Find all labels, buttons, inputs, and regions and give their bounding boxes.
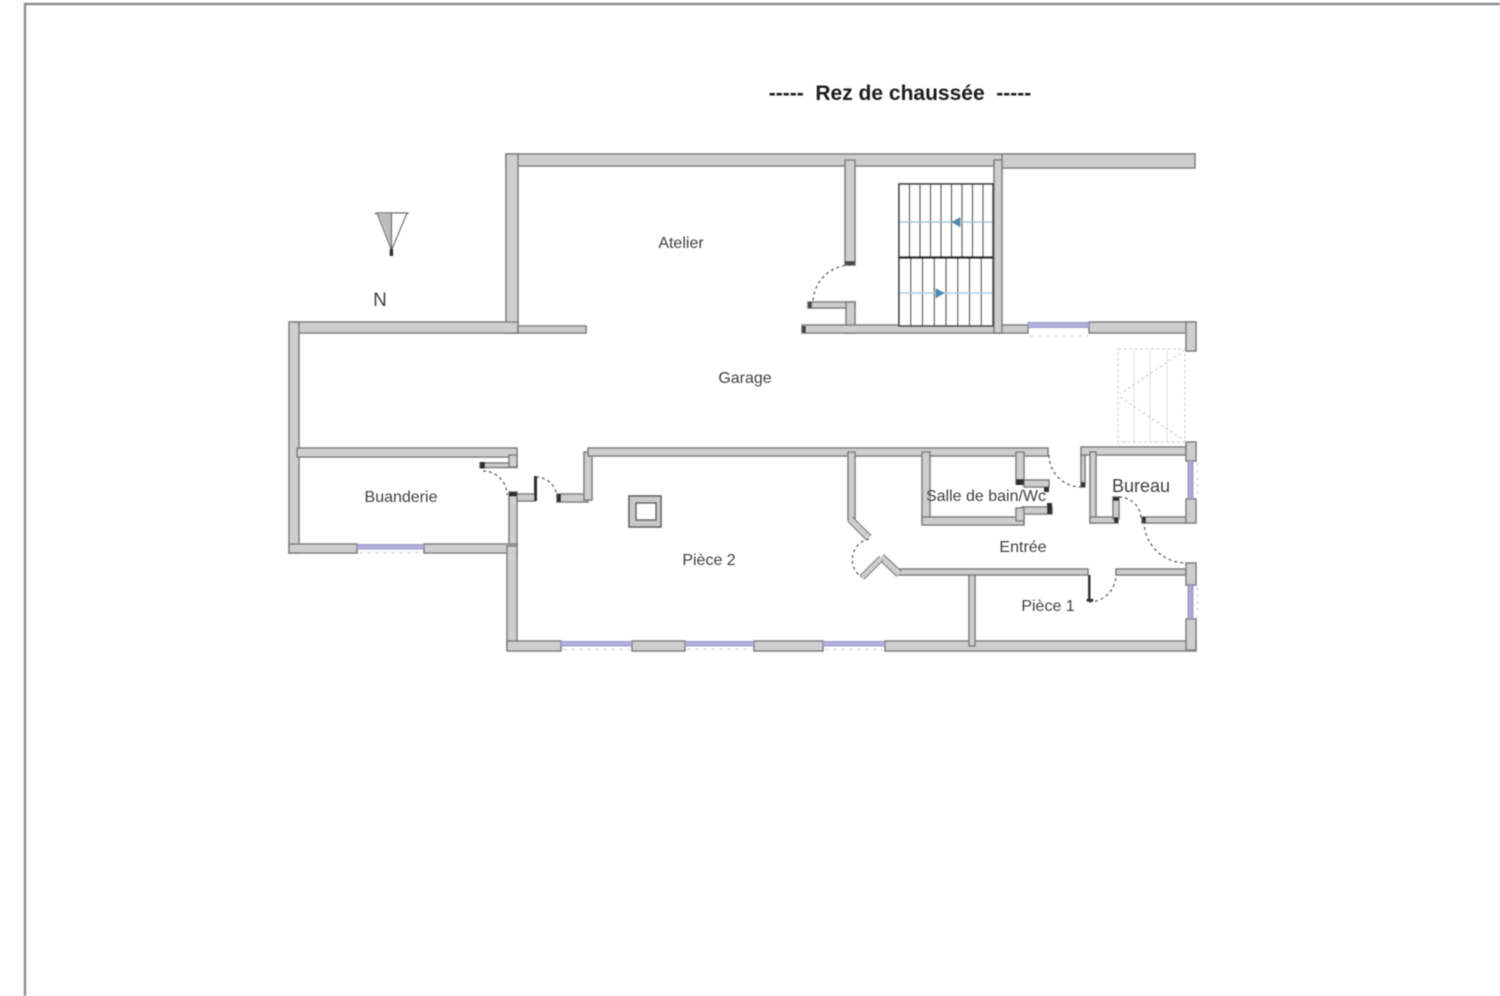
svg-text:Pièce 1: Pièce 1 bbox=[1021, 598, 1074, 615]
svg-text:Garage: Garage bbox=[718, 370, 771, 387]
svg-text:Buanderie: Buanderie bbox=[365, 489, 438, 506]
svg-text:----- Rez de chaussée -----: ----- Rez de chaussée ----- bbox=[769, 82, 1032, 105]
svg-text:Pièce 2: Pièce 2 bbox=[682, 552, 735, 569]
svg-text:N: N bbox=[373, 290, 387, 311]
svg-text:Salle de bain/Wc: Salle de bain/Wc bbox=[926, 488, 1046, 505]
svg-text:Entrée: Entrée bbox=[999, 539, 1046, 556]
svg-text:Atelier: Atelier bbox=[658, 235, 704, 252]
svg-text:Bureau: Bureau bbox=[1112, 476, 1170, 496]
